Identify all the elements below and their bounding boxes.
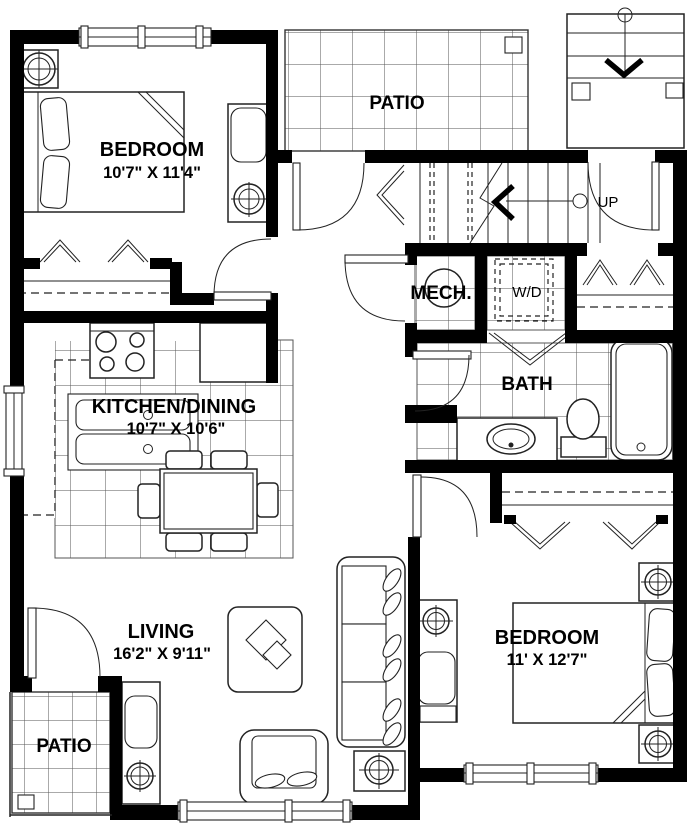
sofa-icon (337, 557, 405, 748)
bedroom2-window (464, 763, 598, 784)
bedroom2-chair-table-icon (415, 600, 457, 722)
bedroom1-dims: 10'7" X 11'4" (103, 164, 201, 182)
floor-plan: BEDROOM 10'7" X 11'4" PATIO UP MECH. W/D… (0, 0, 700, 834)
living-window (178, 800, 352, 822)
stairs-up-label: UP (598, 194, 619, 211)
kitchen-dims: 10'7" X 10'6" (127, 420, 226, 438)
kitchen-label: KITCHEN/DINING (92, 396, 256, 418)
bathtub-icon (611, 339, 672, 460)
loveseat-icon (240, 730, 328, 804)
bedroom1-label: BEDROOM (100, 139, 204, 161)
bedroom2-nightstand-bottom-icon (639, 725, 677, 763)
coffee-table-icon (228, 607, 302, 692)
bath-vanity-sink-icon (457, 418, 557, 462)
end-table-icon (354, 751, 405, 791)
patio-top-tiles (285, 30, 528, 151)
patio-top-label: PATIO (369, 93, 424, 114)
refrigerator-icon (200, 323, 268, 382)
bedroom2-label: BEDROOM (495, 627, 599, 649)
bedroom1-window (79, 26, 211, 48)
bedroom2-nightstand-top-icon (639, 563, 677, 601)
living-dims: 16'2" X 9'11" (113, 645, 211, 663)
kitchen-window (4, 386, 24, 476)
bedroom1-chair-table-icon (228, 104, 270, 222)
stove-icon (90, 323, 154, 378)
floor-plan-drawing: BEDROOM 10'7" X 11'4" PATIO UP MECH. W/D… (0, 0, 700, 834)
living-chair-table-icon (122, 682, 160, 804)
wd-label: W/D (512, 284, 541, 301)
mech-label: MECH. (410, 283, 471, 304)
bedroom1-ceiling-fan-icon (20, 50, 58, 88)
bath-label: BATH (501, 374, 552, 395)
patio-bottom-label: PATIO (36, 736, 91, 757)
living-label: LIVING (128, 621, 195, 643)
bedroom2-dims: 11' X 12'7" (507, 651, 588, 669)
